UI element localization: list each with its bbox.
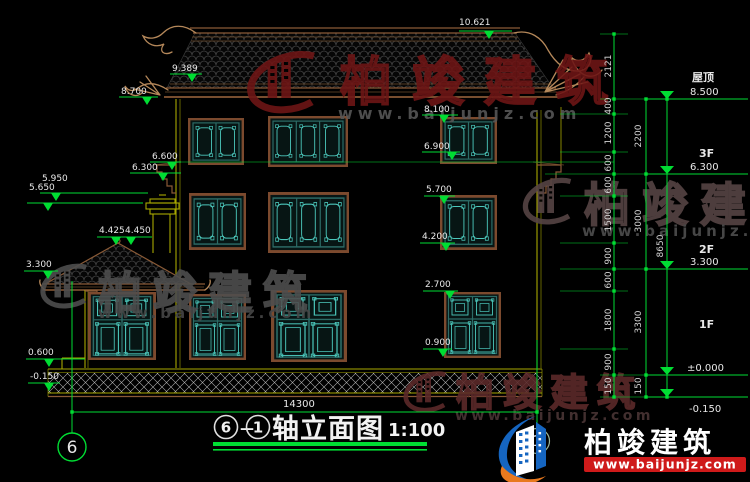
logo-url: www.baijunjz.com — [593, 457, 737, 472]
watermark-url: www.baijunjz.com — [98, 304, 315, 322]
logo-brand: 柏竣建筑 — [584, 426, 716, 459]
floor-elev: -0.150 — [689, 404, 721, 415]
title-grid-start: 6 — [221, 419, 231, 437]
dim-value: 2200 — [634, 124, 644, 147]
width-dimension: 14300 — [283, 399, 315, 410]
dim-value: 3300 — [634, 310, 644, 333]
elev-label: 3.300 — [26, 260, 52, 270]
dim-value: 600 — [604, 176, 614, 193]
elev-label: 4.425 — [99, 226, 125, 236]
dim-value: 1200 — [604, 121, 614, 144]
elev-label: 5.650 — [29, 183, 55, 193]
elevation-drawing: 柏竣建筑 www.baijunjz.com 柏竣建筑 www.baijunjz.… — [0, 0, 750, 482]
window-3f-right — [441, 118, 496, 163]
window-2f-right — [441, 196, 496, 248]
floor-elev: 8.500 — [690, 87, 719, 98]
window-3f-center — [269, 117, 347, 166]
floor-name: 2F — [699, 243, 714, 256]
floor-elev: 6.300 — [690, 162, 719, 173]
dim-value: 1800 — [604, 308, 614, 331]
floor-name: 3F — [699, 147, 714, 160]
elev-label: 9.389 — [172, 64, 198, 74]
title-grid-end: 1 — [253, 419, 263, 437]
elev-label: 0.600 — [28, 348, 54, 358]
elev-label: 4.450 — [125, 226, 151, 236]
dim-value: 1500 — [604, 208, 614, 231]
elev-label: 2.700 — [425, 280, 451, 290]
floor-name: 屋顶 — [692, 71, 714, 84]
dim-value: 600 — [604, 154, 614, 171]
dim-value: 900 — [604, 353, 614, 370]
dim-value: 8650 — [656, 234, 666, 257]
floor-elev: 3.300 — [690, 257, 719, 268]
dim-value: 150 — [634, 377, 644, 394]
elev-label: 4.200 — [422, 232, 448, 242]
title-underline-thin — [213, 449, 427, 451]
dim-value: 600 — [604, 271, 614, 288]
elev-label: 10.621 — [459, 18, 491, 28]
elev-label: 6.900 — [424, 142, 450, 152]
watermark-url: www.baijunjz.com — [338, 104, 581, 123]
elev-label: 8.700 — [121, 87, 147, 97]
elev-label: 6.600 — [152, 152, 178, 162]
drawing-scale: 1:100 — [388, 420, 445, 441]
dim-value: 150 — [604, 377, 614, 394]
dim-value: 400 — [604, 97, 614, 114]
elev-label: 8.100 — [424, 105, 450, 115]
elev-label: 6.300 — [132, 163, 158, 173]
watermark-url: www.baijunjz.com — [455, 408, 654, 424]
dim-value: 900 — [604, 247, 614, 264]
window-1f-right — [445, 293, 500, 357]
elev-label: 0.900 — [425, 338, 451, 348]
grid-bubble-6-label: 6 — [67, 438, 78, 458]
elev-label: -0.150 — [30, 372, 59, 382]
window-2f-left — [190, 194, 245, 248]
elev-label: 5.700 — [426, 185, 452, 195]
drawing-title: 轴立面图 — [272, 413, 384, 445]
dim-value: 3000 — [634, 209, 644, 232]
floor-elev: ±0.000 — [687, 363, 724, 374]
window-2f-center — [269, 193, 348, 251]
floor-name: 1F — [699, 318, 714, 331]
dim-value: 2121 — [604, 55, 614, 78]
title-underline-thick — [213, 442, 427, 446]
window-3f-left — [189, 119, 243, 164]
